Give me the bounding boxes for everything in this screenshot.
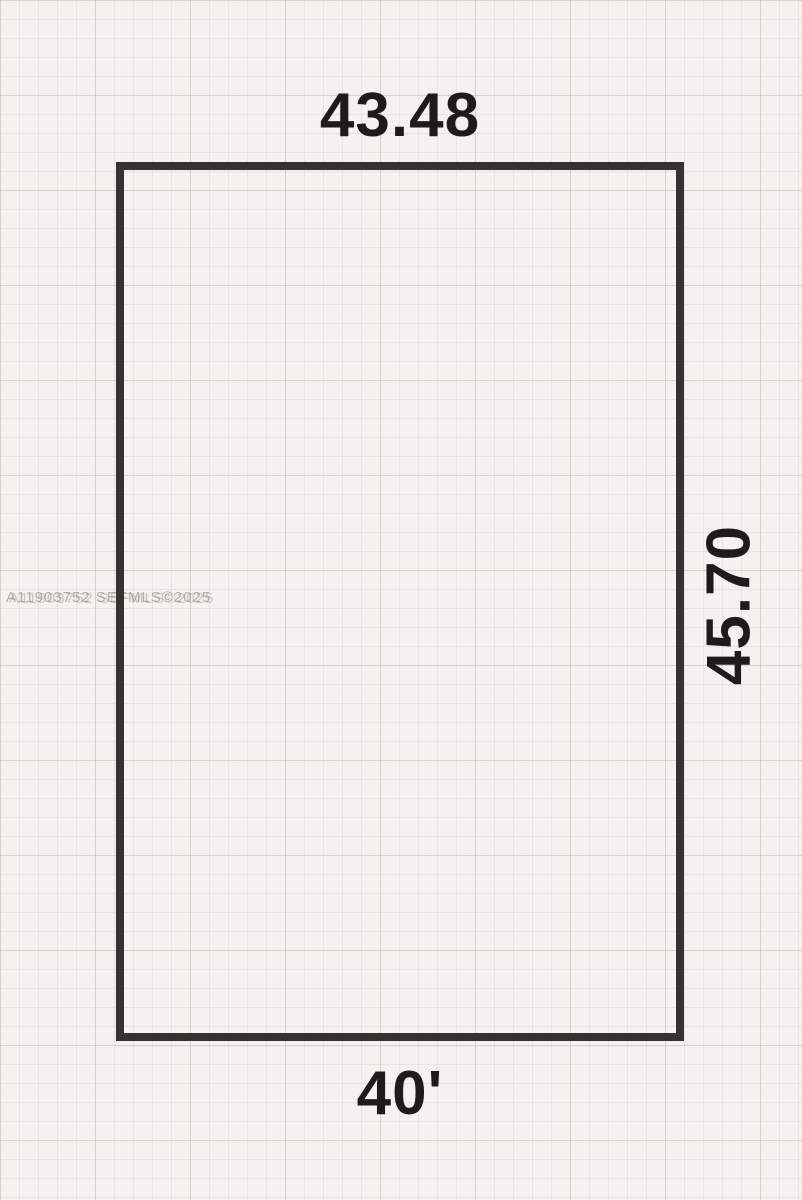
dimension-label-top: 43.48	[116, 80, 684, 151]
lot-boundary-rectangle	[116, 162, 684, 1041]
dimension-label-right: 45.70	[694, 525, 765, 685]
graph-paper-sheet: A11903752 SEFMLS©2025 43.48 45.70 40'	[0, 0, 802, 1200]
dimension-label-bottom: 40'	[116, 1058, 684, 1129]
